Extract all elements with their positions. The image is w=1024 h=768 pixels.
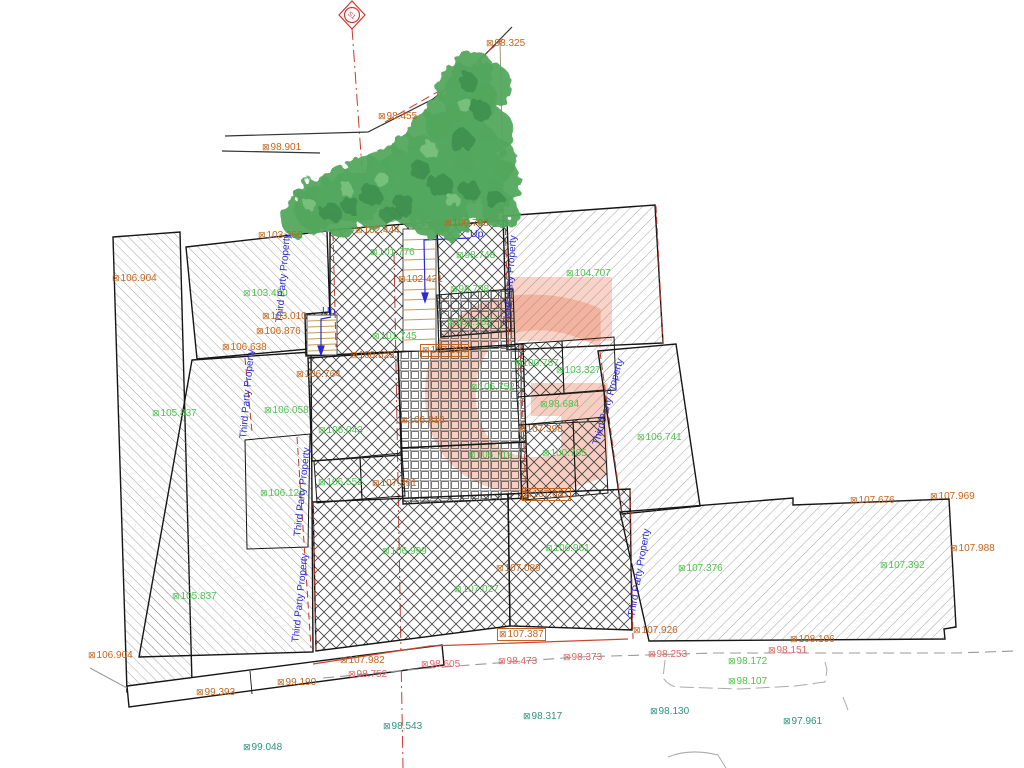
building-bottom-middle-left [313, 494, 510, 651]
tree-canopy [280, 50, 521, 240]
parking-bay-outline [663, 660, 827, 689]
site-plan-svg: G [0, 0, 1024, 768]
building-bottom-right [620, 498, 956, 641]
building-top-right [503, 205, 663, 350]
site-boundary-lines [90, 639, 1014, 768]
room-small-a [314, 457, 362, 503]
survey-drawing-canvas: G [0, 0, 1024, 768]
room-diamond-left [308, 352, 402, 461]
room-small-b [360, 453, 405, 499]
room-rr1 [515, 341, 564, 397]
building-bottom-middle-right [508, 489, 632, 630]
room-rr5 [573, 417, 608, 496]
survey-station-symbol: S1 [339, 1, 365, 29]
room-rr4 [519, 420, 576, 500]
building-footprints [113, 205, 956, 707]
room-grid-main [398, 344, 526, 448]
room-grid-upper [437, 289, 515, 352]
